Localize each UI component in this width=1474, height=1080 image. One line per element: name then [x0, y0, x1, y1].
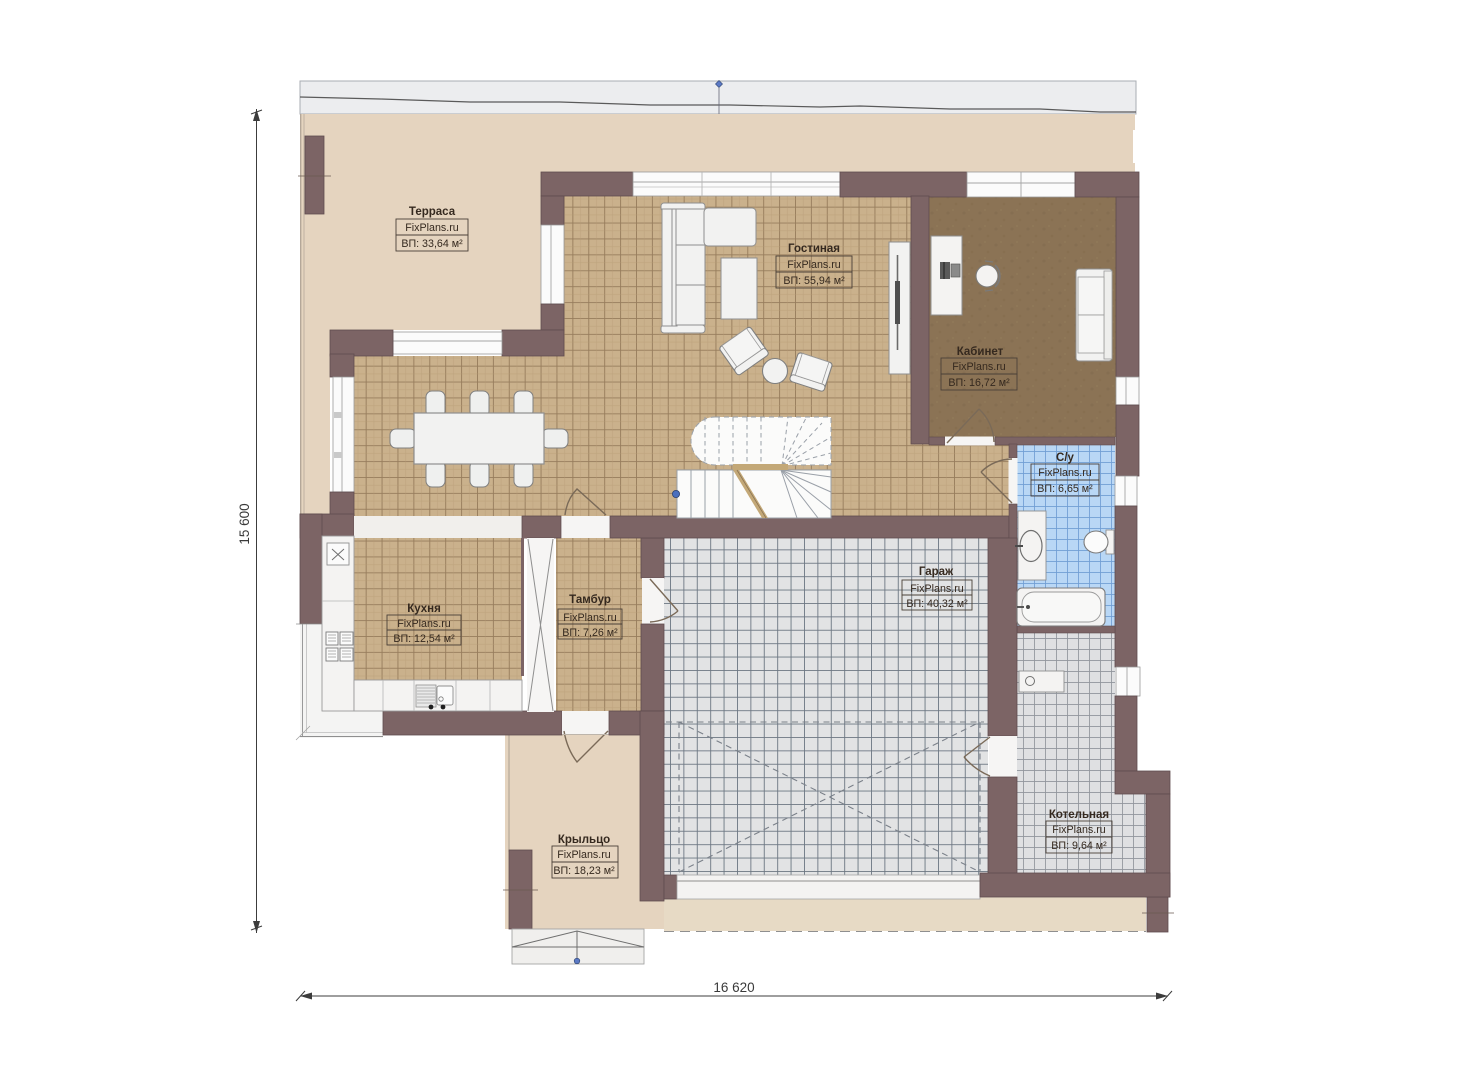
svg-text:Гараж: Гараж — [919, 566, 954, 578]
svg-text:FixPlans.ru: FixPlans.ru — [1052, 824, 1106, 836]
svg-text:ВП: 12,54 м²: ВП: 12,54 м² — [393, 633, 455, 645]
svg-text:ВП: 6,65 м²: ВП: 6,65 м² — [1037, 483, 1093, 495]
svg-text:Гостиная: Гостиная — [788, 243, 840, 255]
svg-text:FixPlans.ru: FixPlans.ru — [910, 583, 964, 595]
svg-text:FixPlans.ru: FixPlans.ru — [557, 849, 611, 861]
svg-text:Кабинет: Кабинет — [957, 346, 1004, 358]
svg-text:FixPlans.ru: FixPlans.ru — [397, 618, 451, 630]
svg-text:FixPlans.ru: FixPlans.ru — [787, 259, 841, 271]
svg-text:FixPlans.ru: FixPlans.ru — [563, 612, 617, 624]
svg-text:Крыльцо: Крыльцо — [558, 834, 610, 846]
svg-text:ВП: 40,32 м²: ВП: 40,32 м² — [906, 598, 968, 610]
svg-text:Тамбур: Тамбур — [569, 594, 611, 606]
svg-text:Котельная: Котельная — [1049, 809, 1109, 821]
svg-text:FixPlans.ru: FixPlans.ru — [1038, 467, 1092, 479]
svg-text:Терраса: Терраса — [409, 206, 456, 218]
svg-text:FixPlans.ru: FixPlans.ru — [952, 361, 1006, 373]
svg-text:16 620: 16 620 — [713, 980, 754, 995]
svg-text:FixPlans.ru: FixPlans.ru — [405, 222, 459, 234]
svg-text:ВП: 18,23 м²: ВП: 18,23 м² — [553, 865, 615, 877]
svg-text:ВП: 9,64 м²: ВП: 9,64 м² — [1051, 840, 1107, 852]
svg-text:Кухня: Кухня — [407, 603, 441, 615]
svg-text:ВП: 33,64 м²: ВП: 33,64 м² — [401, 238, 463, 250]
svg-text:ВП: 7,26 м²: ВП: 7,26 м² — [562, 627, 618, 639]
svg-text:ВП: 55,94 м²: ВП: 55,94 м² — [783, 275, 845, 287]
svg-text:15 600: 15 600 — [237, 503, 252, 544]
svg-text:С/у: С/у — [1056, 452, 1075, 464]
svg-text:ВП: 16,72 м²: ВП: 16,72 м² — [948, 377, 1010, 389]
